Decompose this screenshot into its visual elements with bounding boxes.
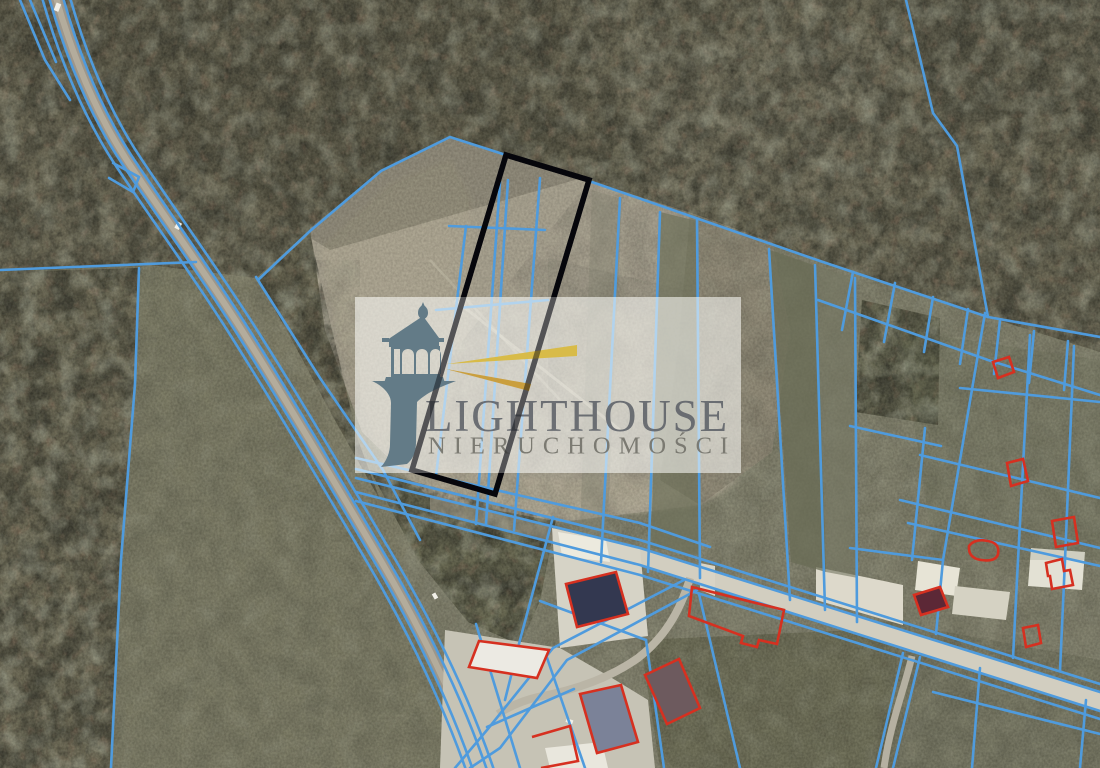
svg-text:NIERUCHOMOŚCI: NIERUCHOMOŚCI	[428, 432, 736, 460]
